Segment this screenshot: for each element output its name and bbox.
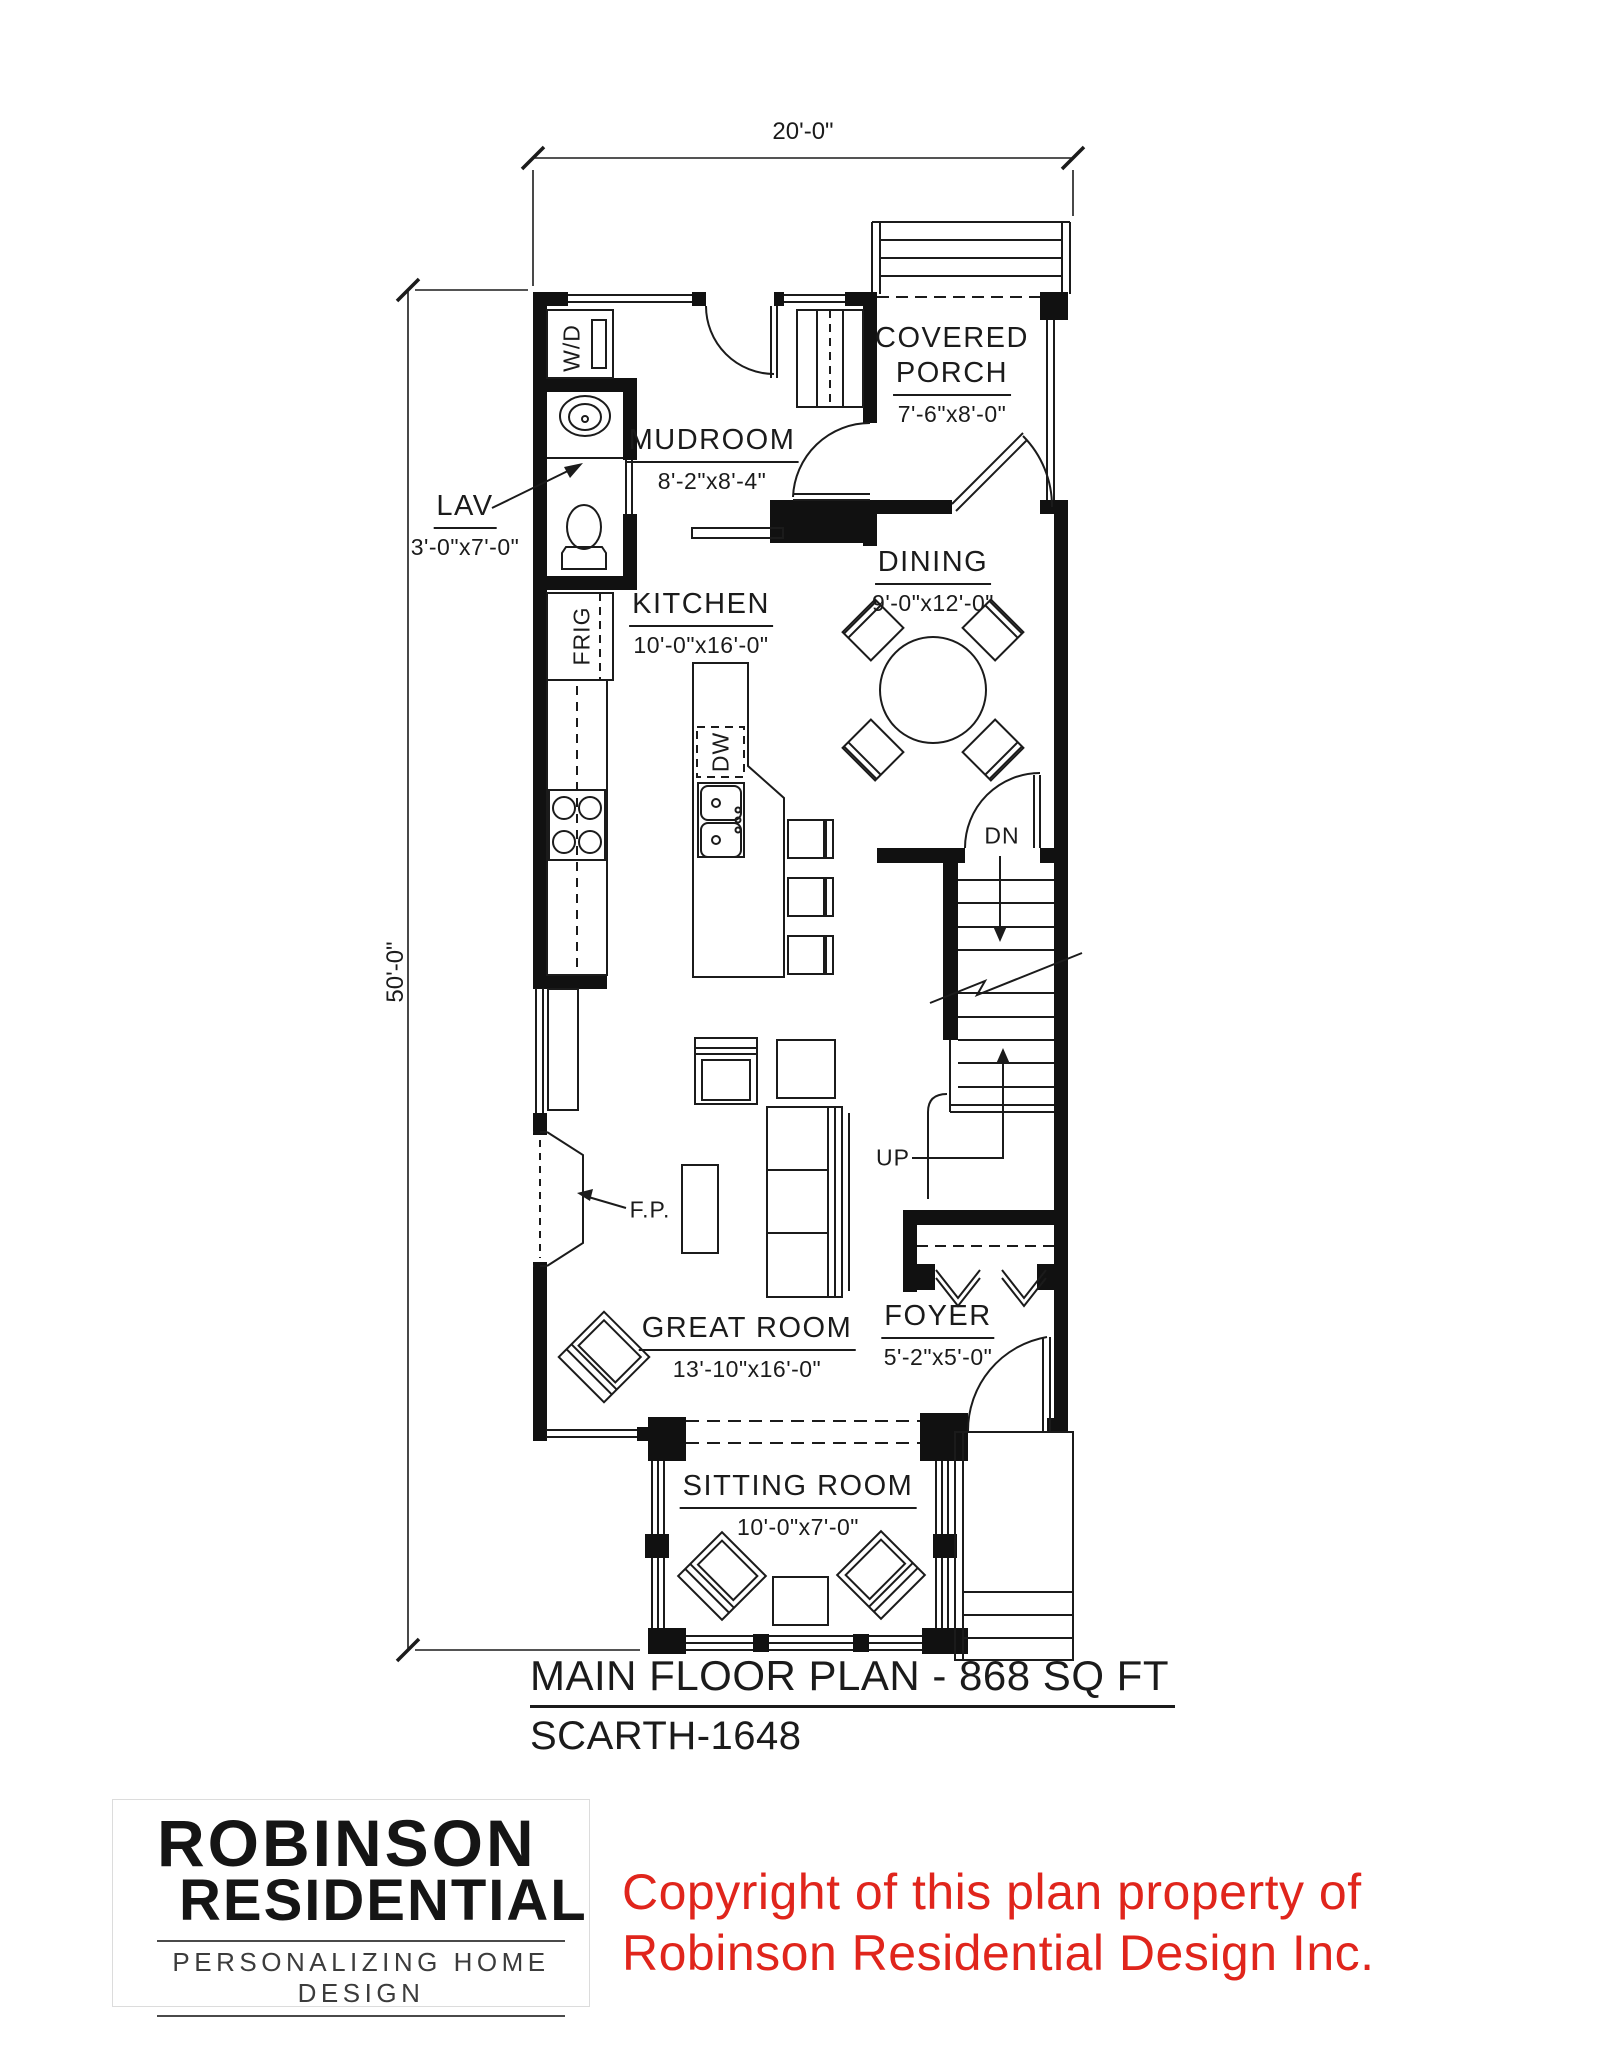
porch-steps	[872, 222, 1070, 297]
room-name: KITCHEN	[629, 588, 773, 627]
dining-table	[880, 637, 986, 743]
copyright-line2: Robinson Residential Design Inc.	[622, 1923, 1375, 1984]
toilet-tank	[562, 547, 606, 569]
room-label-dining: DINING 9'-0"x12'-0"	[872, 546, 994, 617]
plan-number: SCARTH-1648	[530, 1714, 802, 1759]
stair-up-label: UP	[876, 1145, 910, 1172]
room-size: 10'-0"x16'-0"	[629, 632, 773, 659]
room-label-foyer: FOYER 5'-2"x5'-0"	[881, 1300, 994, 1371]
sofa	[767, 1107, 849, 1297]
room-name: GREAT ROOM	[639, 1312, 856, 1351]
room-size: 10'-0"x7'-0"	[680, 1514, 917, 1541]
room-label-sitting-room: SITTING ROOM 10'-0"x7'-0"	[680, 1470, 917, 1541]
fridge-label: FRIG	[569, 607, 596, 666]
cabinet	[548, 989, 578, 1110]
room-label-mudroom: MUDROOM 8'-2"x8'-4"	[626, 424, 799, 495]
room-name: LAV	[433, 490, 496, 529]
room-label-kitchen: KITCHEN 10'-0"x16'-0"	[629, 588, 773, 659]
logo-line2: RESIDENTIAL	[179, 1872, 589, 1930]
room-label-great-room: GREAT ROOM 13'-10"x16'-0"	[639, 1312, 856, 1383]
side-table	[777, 1040, 835, 1098]
fp-arrow	[577, 1189, 593, 1201]
lav-arrow	[564, 463, 583, 478]
room-size: 3'-0"x7'-0"	[411, 534, 520, 561]
room-size: 13'-10"x16'-0"	[639, 1356, 856, 1383]
washer-dryer-label: W/D	[559, 324, 586, 372]
entry-landing	[955, 1432, 1073, 1660]
room-name: DINING	[875, 546, 992, 585]
copyright-notice: Copyright of this plan property of Robin…	[622, 1862, 1375, 1984]
up-arrow	[996, 1048, 1010, 1064]
lav-fixtures	[547, 396, 623, 569]
up-leader	[912, 1058, 1003, 1158]
toilet-bowl	[567, 505, 601, 549]
overall-width-dim: 20'-0"	[772, 118, 833, 146]
sitting-chair	[678, 1532, 766, 1620]
dining-furniture	[843, 600, 1024, 781]
room-size: 7'-6"x8'-0"	[872, 401, 1032, 428]
stair-down-label: DN	[984, 823, 1019, 850]
room-name: PORCH	[893, 357, 1011, 396]
room-label-lav: LAV 3'-0"x7'-0"	[411, 490, 520, 561]
fireplace-label: F.P.	[630, 1197, 671, 1224]
floor-plan-drawing	[0, 0, 1600, 2071]
dishwasher-label: DW	[708, 732, 735, 772]
sitting-room-furniture	[678, 1531, 925, 1625]
dining-chair	[843, 720, 904, 781]
room-name: SITTING ROOM	[680, 1470, 917, 1509]
floor-plan-sheet: 20'-0" 50'-0" COVERED PORCH 7'-6"x8'-0" …	[0, 0, 1600, 2071]
foyer-closet	[917, 1246, 1054, 1306]
logo-line1: ROBINSON	[157, 1810, 589, 1876]
room-size: 8'-2"x8'-4"	[626, 468, 799, 495]
sitting-chair	[837, 1531, 925, 1619]
accent-chair	[559, 1312, 650, 1403]
fireplace	[533, 1132, 583, 1266]
room-name: MUDROOM	[626, 424, 799, 463]
sitting-table	[773, 1577, 828, 1625]
room-size: 9'-0"x12'-0"	[872, 590, 994, 617]
room-size: 5'-2"x5'-0"	[881, 1344, 994, 1371]
overall-depth-dim: 50'-0"	[382, 941, 410, 1002]
sheet-title: MAIN FLOOR PLAN - 868 SQ FT	[530, 1652, 1175, 1708]
robinson-residential-logo: ROBINSON RESIDENTIAL PERSONALIZING HOME …	[112, 1799, 590, 2007]
armchair	[695, 1038, 757, 1104]
room-label-covered-porch: COVERED PORCH 7'-6"x8'-0"	[872, 322, 1032, 428]
handrail	[928, 1094, 947, 1199]
copyright-line1: Copyright of this plan property of	[622, 1862, 1375, 1923]
logo-tagline: PERSONALIZING HOME DESIGN	[157, 1940, 565, 2017]
room-name: FOYER	[881, 1300, 994, 1339]
mudroom-closet	[797, 310, 863, 407]
room-name: COVERED	[872, 322, 1032, 355]
dining-chair	[963, 720, 1024, 781]
windows	[536, 295, 1054, 1650]
coffee-table	[682, 1165, 718, 1253]
down-arrow	[993, 926, 1007, 942]
